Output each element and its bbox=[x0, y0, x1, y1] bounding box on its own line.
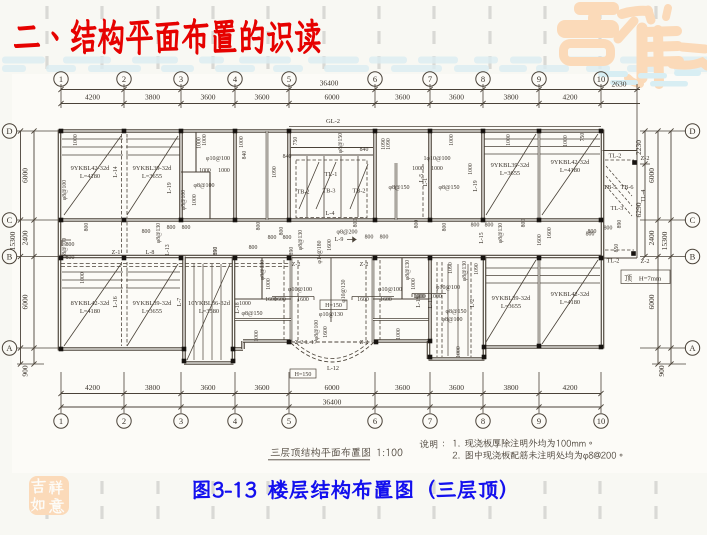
svg-text:L-12: L-12 bbox=[327, 365, 339, 372]
svg-text:3800: 3800 bbox=[145, 93, 160, 102]
svg-text:D: D bbox=[6, 126, 12, 136]
svg-text:4200: 4200 bbox=[563, 93, 578, 102]
svg-text:1000: 1000 bbox=[266, 278, 272, 290]
svg-text:9YKBL42-32d: 9YKBL42-32d bbox=[551, 291, 591, 298]
svg-text:750: 750 bbox=[293, 137, 299, 146]
svg-text:2400: 2400 bbox=[21, 230, 30, 245]
svg-text:φ8@100: φ8@100 bbox=[181, 190, 187, 210]
svg-text:L-19: L-19 bbox=[167, 182, 173, 193]
svg-text:800: 800 bbox=[485, 223, 494, 229]
svg-text:4200: 4200 bbox=[85, 93, 100, 102]
svg-text:7: 7 bbox=[428, 74, 432, 84]
svg-text:φ8@130: φ8@130 bbox=[156, 223, 162, 243]
svg-text:3600: 3600 bbox=[449, 93, 464, 102]
svg-text:800: 800 bbox=[256, 222, 262, 231]
svg-text:Z-2: Z-2 bbox=[292, 262, 301, 268]
svg-text:800: 800 bbox=[521, 219, 527, 228]
svg-text:H=7mm: H=7mm bbox=[639, 276, 662, 283]
svg-text:6000: 6000 bbox=[325, 383, 340, 392]
svg-text:3600: 3600 bbox=[255, 383, 270, 392]
svg-text:A: A bbox=[6, 343, 13, 353]
svg-text:TB-3: TB-3 bbox=[322, 188, 335, 195]
svg-text:1000: 1000 bbox=[239, 301, 251, 307]
svg-text:φ8@100: φ8@100 bbox=[62, 238, 68, 258]
svg-text:1000: 1000 bbox=[563, 135, 569, 147]
svg-text:GL-2: GL-2 bbox=[326, 118, 340, 125]
svg-text:L=3655: L=3655 bbox=[500, 170, 520, 177]
svg-text:L=3580: L=3580 bbox=[199, 308, 219, 315]
svg-text:800: 800 bbox=[142, 229, 151, 235]
svg-text:φ8@100: φ8@100 bbox=[314, 320, 320, 340]
svg-text:36400: 36400 bbox=[320, 79, 339, 88]
svg-text:L-7: L-7 bbox=[177, 298, 183, 306]
svg-text:φ10@100: φ10@100 bbox=[206, 156, 230, 162]
svg-text:φ8@150: φ8@150 bbox=[242, 311, 263, 317]
svg-text:L=3655: L=3655 bbox=[142, 308, 162, 315]
svg-text:750: 750 bbox=[580, 133, 586, 142]
svg-text:φ8@200: φ8@200 bbox=[337, 230, 358, 236]
svg-text:TL-1: TL-1 bbox=[325, 171, 338, 178]
svg-text:900: 900 bbox=[21, 365, 30, 377]
svg-text:Z-2: Z-2 bbox=[641, 258, 650, 265]
svg-text:φ10@130: φ10@130 bbox=[341, 279, 347, 302]
svg-text:φ14@180: φ14@180 bbox=[317, 240, 323, 263]
svg-text:TB-5: TB-5 bbox=[603, 184, 616, 191]
svg-text:900: 900 bbox=[657, 365, 666, 377]
svg-text:1600: 1600 bbox=[265, 297, 277, 303]
svg-text:C: C bbox=[690, 215, 696, 225]
svg-text:890: 890 bbox=[617, 220, 623, 229]
svg-text:4200: 4200 bbox=[563, 383, 578, 392]
svg-text:1000: 1000 bbox=[254, 330, 260, 342]
svg-text:L-2: L-2 bbox=[470, 299, 476, 307]
svg-text:6: 6 bbox=[373, 416, 377, 426]
svg-text:D: D bbox=[689, 126, 695, 136]
svg-text:9YKBL42-32d: 9YKBL42-32d bbox=[71, 165, 111, 172]
svg-text:9YKBL39-32d: 9YKBL39-32d bbox=[133, 165, 173, 172]
svg-text:1000: 1000 bbox=[414, 294, 426, 300]
svg-text:1000: 1000 bbox=[449, 134, 455, 146]
svg-text:840: 840 bbox=[360, 147, 369, 153]
svg-text:9YKBL39-32d: 9YKBL39-32d bbox=[491, 162, 531, 169]
svg-text:2400: 2400 bbox=[647, 230, 656, 245]
svg-text:840: 840 bbox=[283, 154, 292, 160]
svg-text:A: A bbox=[689, 343, 696, 353]
svg-text:TL-2: TL-2 bbox=[609, 153, 622, 160]
svg-text:B: B bbox=[7, 252, 13, 262]
svg-text:1000: 1000 bbox=[199, 168, 211, 174]
svg-text:1000: 1000 bbox=[396, 328, 402, 340]
svg-text:L=3655: L=3655 bbox=[142, 173, 162, 180]
svg-text:3800: 3800 bbox=[504, 93, 519, 102]
svg-text:9YKBL39-32d: 9YKBL39-32d bbox=[133, 300, 173, 307]
svg-text:L=3655: L=3655 bbox=[501, 303, 521, 310]
svg-text:6000: 6000 bbox=[647, 168, 656, 183]
svg-text:1600: 1600 bbox=[297, 297, 309, 303]
svg-text:TB-2: TB-2 bbox=[352, 188, 365, 195]
svg-text:8: 8 bbox=[481, 74, 485, 84]
svg-text:800: 800 bbox=[268, 235, 277, 241]
svg-text:9: 9 bbox=[537, 416, 541, 426]
svg-text:1: 1 bbox=[59, 74, 63, 84]
svg-text:C: C bbox=[7, 215, 13, 225]
svg-text:5: 5 bbox=[287, 74, 291, 84]
svg-text:1090: 1090 bbox=[386, 138, 392, 150]
svg-text:φ8@100: φ8@100 bbox=[194, 183, 215, 189]
svg-text:800: 800 bbox=[353, 219, 359, 228]
svg-text:2: 2 bbox=[122, 74, 126, 84]
svg-text:L-15: L-15 bbox=[479, 232, 485, 243]
svg-text:TL-3: TL-3 bbox=[611, 205, 624, 212]
svg-text:36400: 36400 bbox=[323, 398, 342, 407]
svg-text:H=150: H=150 bbox=[295, 372, 312, 378]
svg-text:15300: 15300 bbox=[660, 231, 669, 250]
svg-text:φ10@100: φ10@100 bbox=[378, 287, 402, 293]
svg-text:φ10@100: φ10@100 bbox=[436, 285, 460, 291]
svg-text:3600: 3600 bbox=[255, 93, 270, 102]
svg-text:φ8@130: φ8@130 bbox=[405, 260, 411, 280]
svg-text:2630: 2630 bbox=[612, 80, 627, 89]
svg-text:B: B bbox=[690, 252, 696, 262]
svg-text:8: 8 bbox=[481, 416, 485, 426]
svg-text:10YKBL36-32d: 10YKBL36-32d bbox=[188, 300, 231, 307]
svg-text:1000: 1000 bbox=[192, 194, 198, 206]
svg-text:3600: 3600 bbox=[449, 383, 464, 392]
svg-text:φ8@130: φ8@130 bbox=[462, 261, 468, 281]
svg-text:L-16: L-16 bbox=[113, 296, 119, 307]
svg-text:TB-2: TB-2 bbox=[296, 189, 309, 196]
svg-text:6290: 6290 bbox=[634, 202, 643, 217]
svg-text:Z-2: Z-2 bbox=[360, 262, 369, 268]
svg-text:6000: 6000 bbox=[325, 93, 340, 102]
svg-text:H=150: H=150 bbox=[325, 303, 342, 309]
svg-text:1φ10@100: 1φ10@100 bbox=[424, 156, 451, 162]
svg-text:1600: 1600 bbox=[323, 326, 329, 338]
svg-text:1000: 1000 bbox=[456, 346, 462, 358]
svg-text:890: 890 bbox=[213, 247, 219, 256]
svg-text:φ8@130: φ8@130 bbox=[260, 260, 266, 280]
svg-text:1600: 1600 bbox=[327, 239, 333, 251]
svg-text:L=4180: L=4180 bbox=[80, 173, 100, 180]
svg-text:1090: 1090 bbox=[448, 262, 454, 274]
svg-text:800: 800 bbox=[471, 223, 480, 229]
svg-text:φ8@150: φ8@150 bbox=[389, 185, 410, 191]
svg-text:φ8@150: φ8@150 bbox=[439, 185, 460, 191]
svg-text:L-14: L-14 bbox=[113, 166, 119, 177]
svg-text:TB-6: TB-6 bbox=[620, 184, 633, 191]
svg-text:φ8@130: φ8@130 bbox=[298, 230, 304, 250]
svg-text:L=4180: L=4180 bbox=[80, 308, 100, 315]
svg-text:6: 6 bbox=[373, 74, 377, 84]
svg-text:Z-2: Z-2 bbox=[295, 340, 304, 346]
svg-text:TL-2: TL-2 bbox=[607, 258, 620, 265]
svg-text:6000: 6000 bbox=[21, 168, 30, 183]
svg-text:1000: 1000 bbox=[430, 294, 442, 300]
svg-text:800: 800 bbox=[442, 223, 448, 232]
svg-text:φ8@150: φ8@150 bbox=[446, 309, 467, 315]
svg-text:1600: 1600 bbox=[547, 227, 553, 239]
svg-text:6000: 6000 bbox=[21, 294, 30, 309]
svg-text:15300: 15300 bbox=[8, 231, 17, 250]
svg-text:φ8@150: φ8@150 bbox=[338, 133, 344, 153]
svg-text:L-8: L-8 bbox=[146, 250, 155, 256]
svg-text:L-4: L-4 bbox=[326, 210, 335, 217]
svg-text:Z-1: Z-1 bbox=[112, 250, 121, 256]
svg-text:φ10@130: φ10@130 bbox=[319, 312, 343, 318]
svg-text:1000: 1000 bbox=[218, 168, 230, 174]
svg-text:L-9: L-9 bbox=[335, 237, 344, 243]
svg-text:800: 800 bbox=[414, 220, 420, 229]
svg-text:10: 10 bbox=[597, 74, 606, 84]
svg-text:800: 800 bbox=[588, 229, 597, 235]
svg-text:9YKBL39-32d: 9YKBL39-32d bbox=[492, 295, 532, 302]
svg-text:890: 890 bbox=[289, 247, 295, 256]
svg-text:L-5: L-5 bbox=[419, 174, 425, 182]
svg-text:3600: 3600 bbox=[201, 93, 216, 102]
svg-text:1000: 1000 bbox=[73, 134, 79, 146]
svg-text:3: 3 bbox=[179, 74, 183, 84]
svg-text:9: 9 bbox=[537, 74, 541, 84]
svg-text:5: 5 bbox=[287, 416, 291, 426]
svg-text:800: 800 bbox=[365, 235, 374, 241]
svg-text:840: 840 bbox=[242, 151, 248, 160]
svg-text:800: 800 bbox=[84, 223, 90, 232]
svg-text:4200: 4200 bbox=[85, 383, 100, 392]
svg-text:8YKBL42-32d: 8YKBL42-32d bbox=[71, 300, 111, 307]
svg-text:1600: 1600 bbox=[380, 297, 392, 303]
svg-text:L=4180: L=4180 bbox=[560, 299, 580, 306]
svg-text:φ8@100: φ8@100 bbox=[442, 317, 463, 323]
svg-text:1600: 1600 bbox=[357, 297, 369, 303]
svg-text:3: 3 bbox=[179, 416, 183, 426]
svg-text:1090: 1090 bbox=[272, 166, 278, 178]
svg-text:7: 7 bbox=[428, 416, 432, 426]
svg-text:2230: 2230 bbox=[634, 140, 643, 155]
svg-text:L-19: L-19 bbox=[473, 180, 479, 191]
svg-text:1000: 1000 bbox=[239, 136, 245, 148]
svg-text:1090: 1090 bbox=[474, 263, 480, 275]
svg-text:1000: 1000 bbox=[411, 278, 417, 290]
svg-text:3600: 3600 bbox=[395, 383, 410, 392]
svg-text:800: 800 bbox=[182, 225, 191, 231]
svg-text:2: 2 bbox=[122, 416, 126, 426]
svg-text:800: 800 bbox=[167, 225, 176, 231]
svg-text:3600: 3600 bbox=[201, 383, 216, 392]
svg-text:φ8@100: φ8@100 bbox=[62, 180, 68, 200]
svg-text:L-13: L-13 bbox=[165, 244, 171, 255]
svg-text:800: 800 bbox=[380, 235, 389, 241]
svg-text:3800: 3800 bbox=[504, 383, 519, 392]
svg-text:800: 800 bbox=[604, 226, 613, 232]
svg-text:1000: 1000 bbox=[431, 166, 443, 172]
svg-text:1: 1 bbox=[59, 416, 63, 426]
svg-text:1000: 1000 bbox=[80, 272, 86, 284]
svg-text:L=4180: L=4180 bbox=[560, 167, 580, 174]
svg-text:1000: 1000 bbox=[506, 134, 512, 146]
svg-text:1600: 1600 bbox=[537, 234, 543, 246]
svg-text:3800: 3800 bbox=[145, 383, 160, 392]
svg-text:1000: 1000 bbox=[412, 166, 424, 172]
svg-text:10: 10 bbox=[597, 416, 606, 426]
svg-text:φ10@100: φ10@100 bbox=[288, 287, 312, 293]
svg-text:850: 850 bbox=[614, 244, 620, 253]
svg-text:Z-2: Z-2 bbox=[641, 155, 650, 162]
svg-text:1000: 1000 bbox=[202, 134, 208, 146]
svg-text:1000: 1000 bbox=[468, 163, 474, 175]
svg-text:3600: 3600 bbox=[395, 93, 410, 102]
svg-text:TL-4: TL-4 bbox=[640, 190, 647, 203]
svg-text:6000: 6000 bbox=[647, 294, 656, 309]
svg-text:800: 800 bbox=[249, 245, 258, 251]
svg-text:Z-2: Z-2 bbox=[360, 340, 369, 346]
svg-text:800: 800 bbox=[283, 235, 292, 241]
svg-text:9YKBL42-32d: 9YKBL42-32d bbox=[551, 159, 591, 166]
svg-text:φ8@130: φ8@130 bbox=[498, 223, 504, 243]
